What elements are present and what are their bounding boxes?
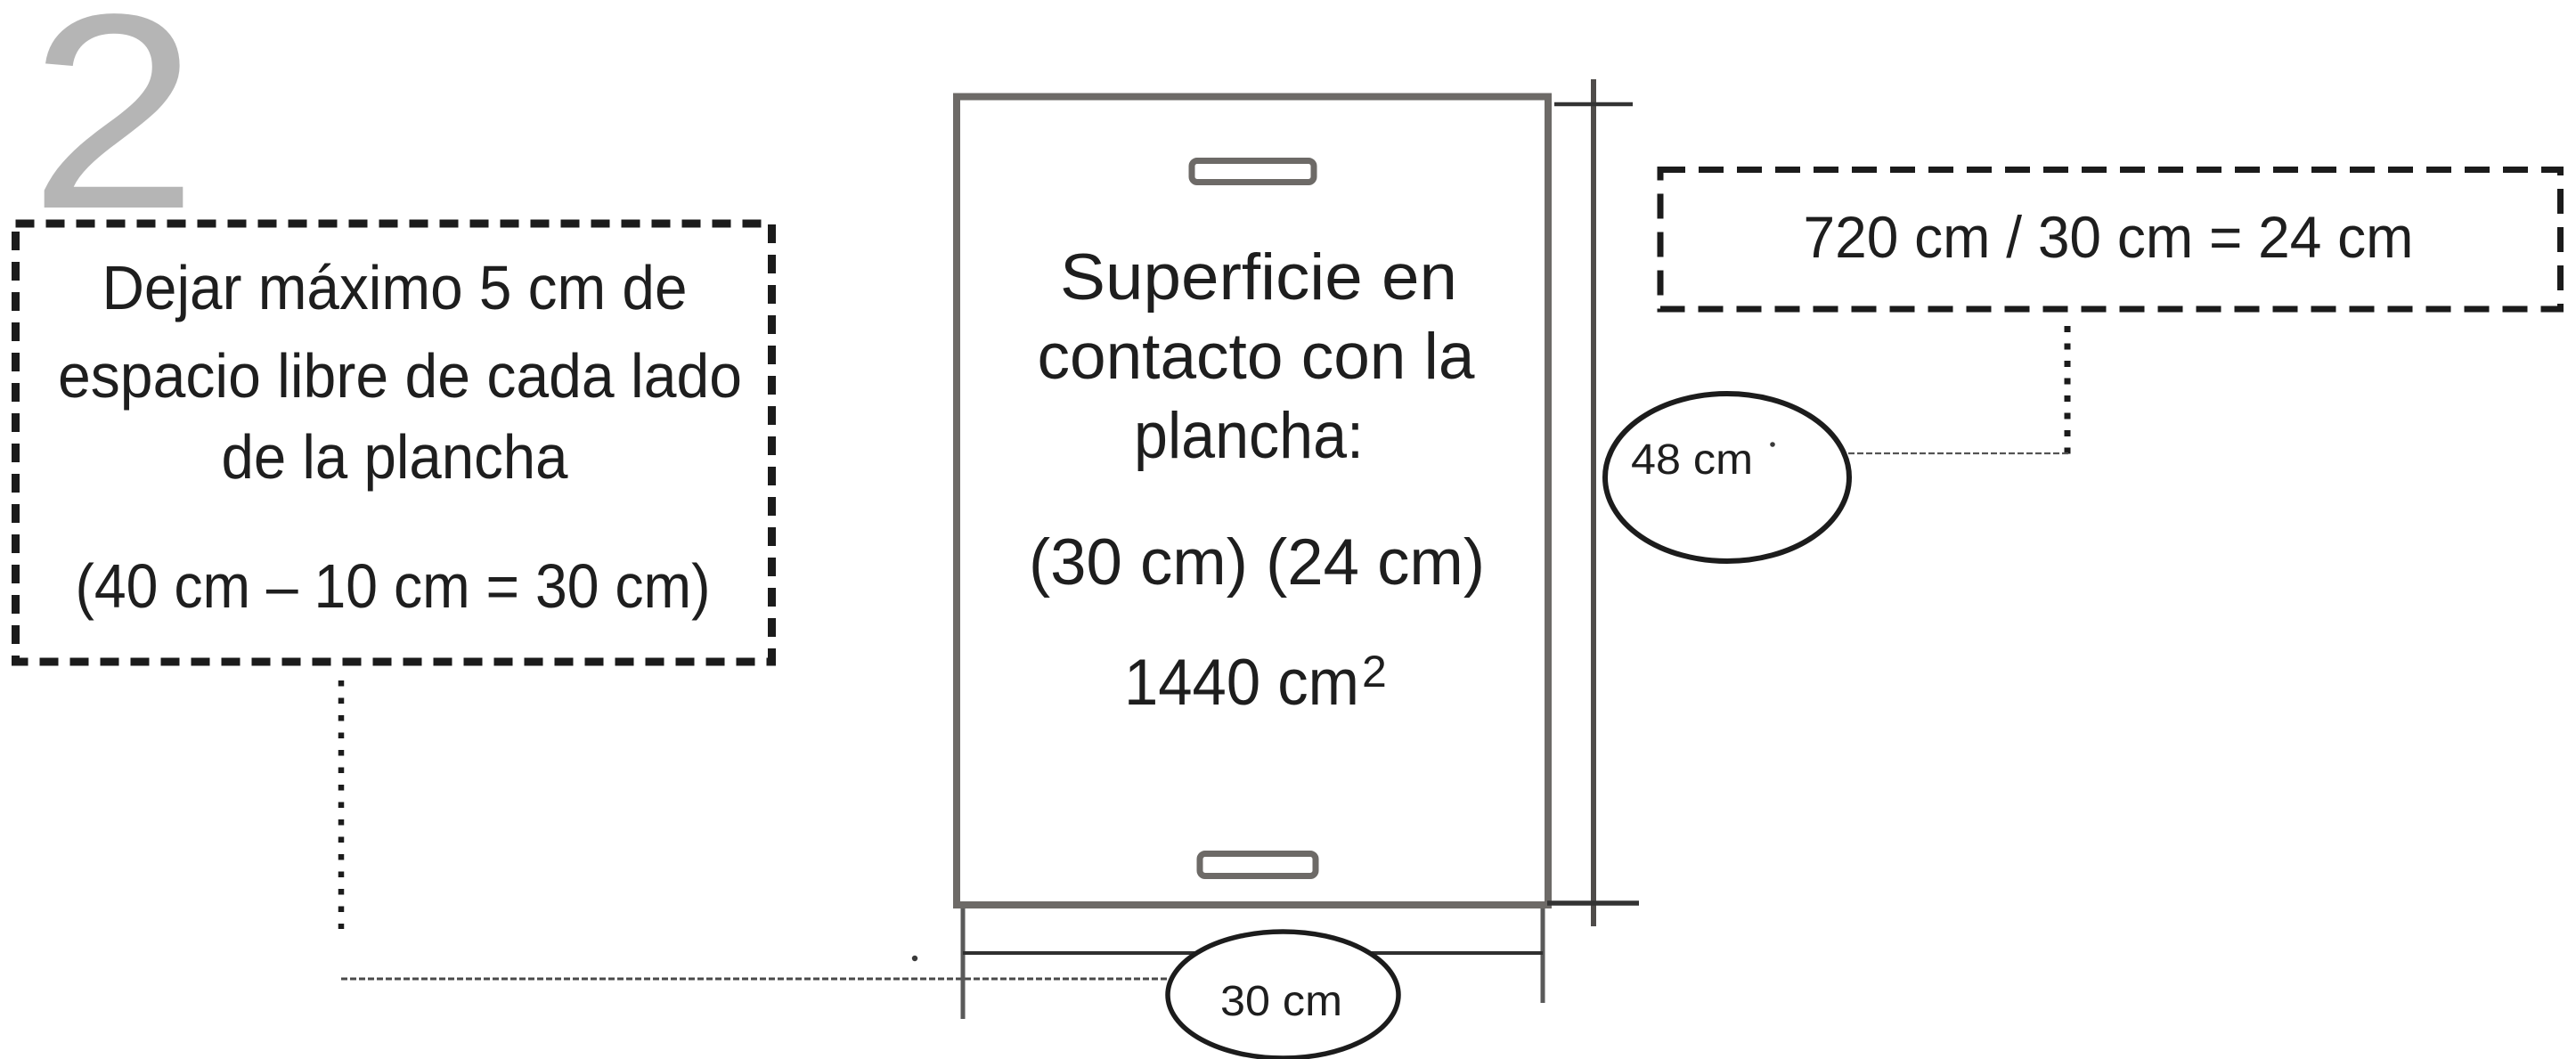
svg-text:2: 2: [1362, 647, 1387, 696]
svg-text:(30 cm) (24 cm): (30 cm) (24 cm): [1029, 526, 1485, 599]
svg-text:30 cm: 30 cm: [1220, 978, 1342, 1025]
svg-text:Dejar máximo 5 cm de: Dejar máximo 5 cm de: [102, 253, 688, 322]
svg-text:48 cm: 48 cm: [1631, 436, 1753, 484]
svg-text:plancha:: plancha:: [1134, 400, 1364, 472]
svg-text:de la plancha: de la plancha: [222, 422, 568, 492]
svg-text:(40 cm – 10 cm = 30 cm): (40 cm – 10 cm = 30 cm): [76, 551, 711, 621]
svg-text:Superficie en: Superficie en: [1060, 241, 1457, 314]
svg-text:1440 cm: 1440 cm: [1124, 647, 1359, 719]
svg-text:720 cm / 30 cm = 24 cm: 720 cm / 30 cm = 24 cm: [1804, 204, 2414, 270]
svg-text:contacto con la: contacto con la: [1038, 321, 1475, 393]
svg-text:espacio libre de cada lado: espacio libre de cada lado: [58, 341, 742, 411]
